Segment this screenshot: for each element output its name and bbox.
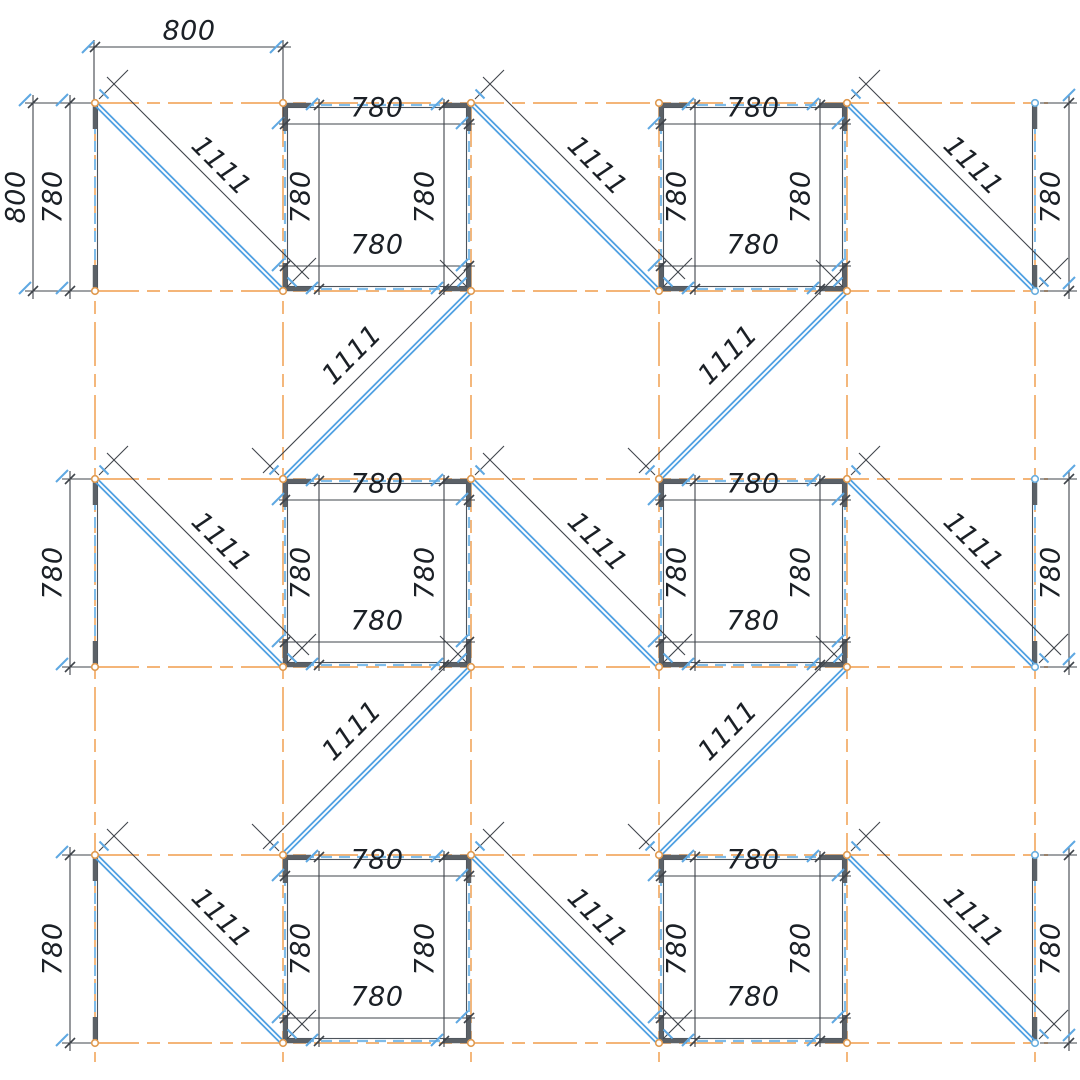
panel-dim-left: 780 <box>286 170 317 223</box>
right-edge-dim: 780 <box>1036 170 1067 223</box>
panel-dim-right: 780 <box>410 546 441 599</box>
grid-node <box>92 852 99 859</box>
panel-dim-right: 780 <box>410 922 441 975</box>
panel-dim-left: 780 <box>662 922 693 975</box>
panel-dim-right: 780 <box>786 170 817 223</box>
panel-dim-bottom: 780 <box>350 982 403 1013</box>
grid-node <box>92 476 99 483</box>
panel-dim-top: 780 <box>350 845 403 876</box>
panel-dim-bottom: 780 <box>726 982 779 1013</box>
grid-node <box>844 100 851 107</box>
grid-node <box>468 288 475 295</box>
panel-dim-bottom: 780 <box>350 230 403 261</box>
edge-dimensions: 800800780780780780780780 <box>1 16 1078 1052</box>
brace-dim: 1111 <box>316 319 388 391</box>
right-edge-dim: 780 <box>1036 546 1067 599</box>
grid-node <box>1032 1040 1039 1047</box>
grid-node <box>92 100 99 107</box>
left-edge-dim: 800 <box>1 170 32 223</box>
grid-node <box>468 852 475 859</box>
cad-drawing-page: 7807807807807807807807807807807807807807… <box>0 0 1080 1080</box>
brace-dim: 1111 <box>692 319 764 391</box>
grid-node <box>468 100 475 107</box>
grid-node <box>656 1040 663 1047</box>
grid-node <box>468 476 475 483</box>
grid-node <box>844 1040 851 1047</box>
panel-dim-bottom: 780 <box>350 606 403 637</box>
grid-node <box>1032 288 1039 295</box>
panel-dim-top: 780 <box>350 93 403 124</box>
panel-dim-top: 780 <box>726 93 779 124</box>
grid-node <box>1032 852 1039 859</box>
panel-dim-left: 780 <box>286 546 317 599</box>
grid-node <box>468 664 475 671</box>
grid-node <box>844 476 851 483</box>
panel-dim-left: 780 <box>286 922 317 975</box>
grid-node <box>656 476 663 483</box>
panel-dim-top: 780 <box>726 845 779 876</box>
right-edge-dim: 780 <box>1036 922 1067 975</box>
grid-node <box>92 664 99 671</box>
left-edge-dim: 780 <box>38 922 69 975</box>
grid-node <box>280 288 287 295</box>
panel-dim-top: 780 <box>726 469 779 500</box>
panel-dim-right: 780 <box>786 922 817 975</box>
grid-node <box>1032 100 1039 107</box>
grid-node <box>280 664 287 671</box>
grid-node <box>656 100 663 107</box>
grid-node <box>280 100 287 107</box>
panel-dim-top: 780 <box>350 469 403 500</box>
panel-dim-left: 780 <box>662 546 693 599</box>
grid-node <box>844 852 851 859</box>
left-edge-dim: 780 <box>38 170 69 223</box>
top-pitch-dim: 800 <box>162 16 215 47</box>
brace-dim: 1111 <box>692 695 764 767</box>
grid-node <box>92 288 99 295</box>
panel-dim-bottom: 780 <box>726 230 779 261</box>
grid-node <box>656 288 663 295</box>
panel-dim-right: 780 <box>410 170 441 223</box>
grid-node <box>656 852 663 859</box>
grid-node <box>1032 476 1039 483</box>
grid-node <box>92 1040 99 1047</box>
grid-node <box>468 1040 475 1047</box>
grid-node <box>280 476 287 483</box>
brace-dimensions: 1111111111111111111111111111111111111111… <box>99 70 1068 1039</box>
grid-node <box>280 1040 287 1047</box>
grid-node <box>656 664 663 671</box>
left-edge-dim: 780 <box>38 546 69 599</box>
grid-node <box>844 664 851 671</box>
grid-node <box>280 852 287 859</box>
grid-node <box>844 288 851 295</box>
panel-dim-right: 780 <box>786 546 817 599</box>
brace-dim: 1111 <box>316 695 388 767</box>
grid-node <box>1032 664 1039 671</box>
panel-dim-bottom: 780 <box>726 606 779 637</box>
panel-dim-left: 780 <box>662 170 693 223</box>
frame-plan-drawing: 7807807807807807807807807807807807807807… <box>0 0 1080 1080</box>
